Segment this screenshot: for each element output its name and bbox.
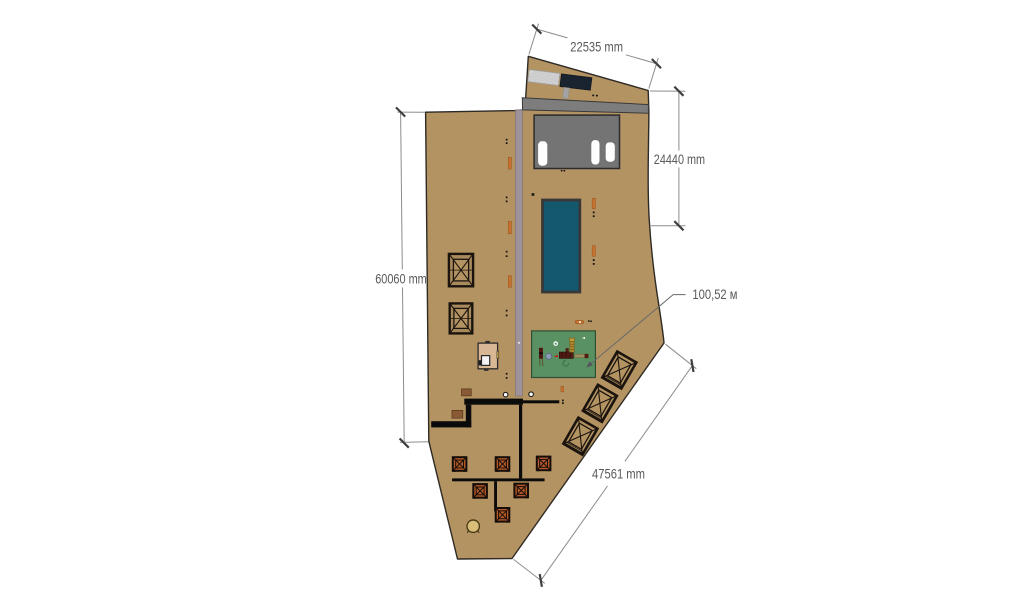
svg-text:22535 mm: 22535 mm [570, 39, 623, 55]
svg-text:100,52 м: 100,52 м [692, 286, 737, 302]
svg-text:24440 mm: 24440 mm [654, 151, 705, 167]
svg-text:60060 mm: 60060 mm [375, 270, 427, 286]
svg-text:47561 mm: 47561 mm [592, 466, 645, 482]
